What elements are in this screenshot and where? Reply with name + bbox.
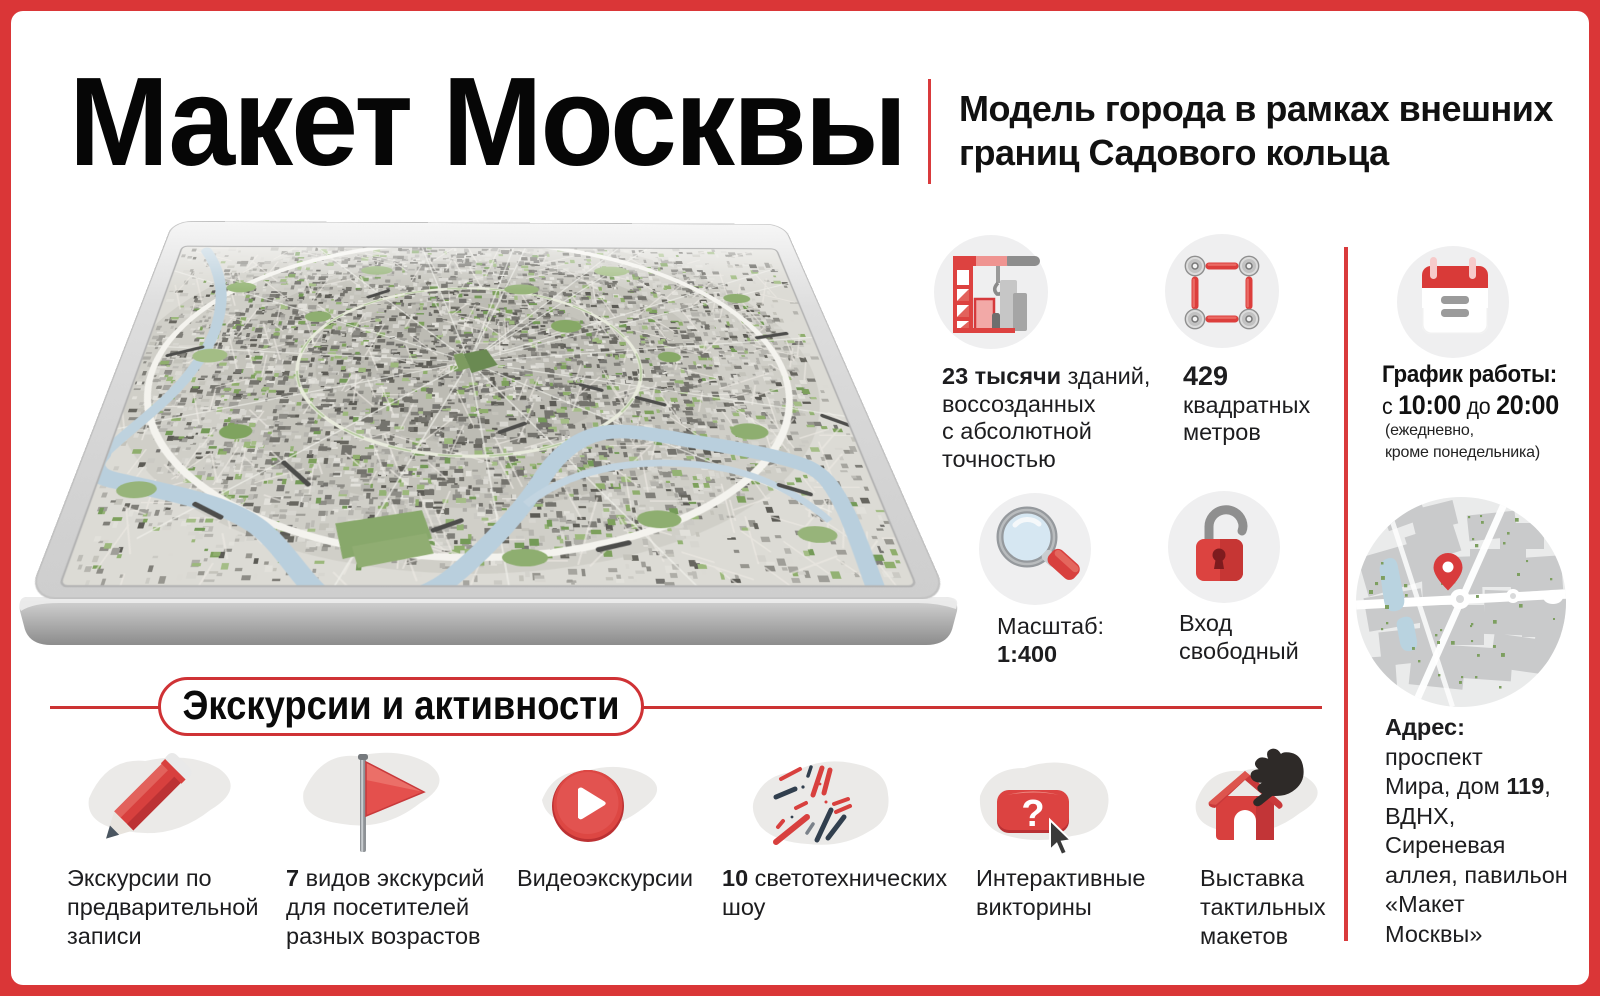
svg-text:?: ? bbox=[1021, 793, 1044, 835]
